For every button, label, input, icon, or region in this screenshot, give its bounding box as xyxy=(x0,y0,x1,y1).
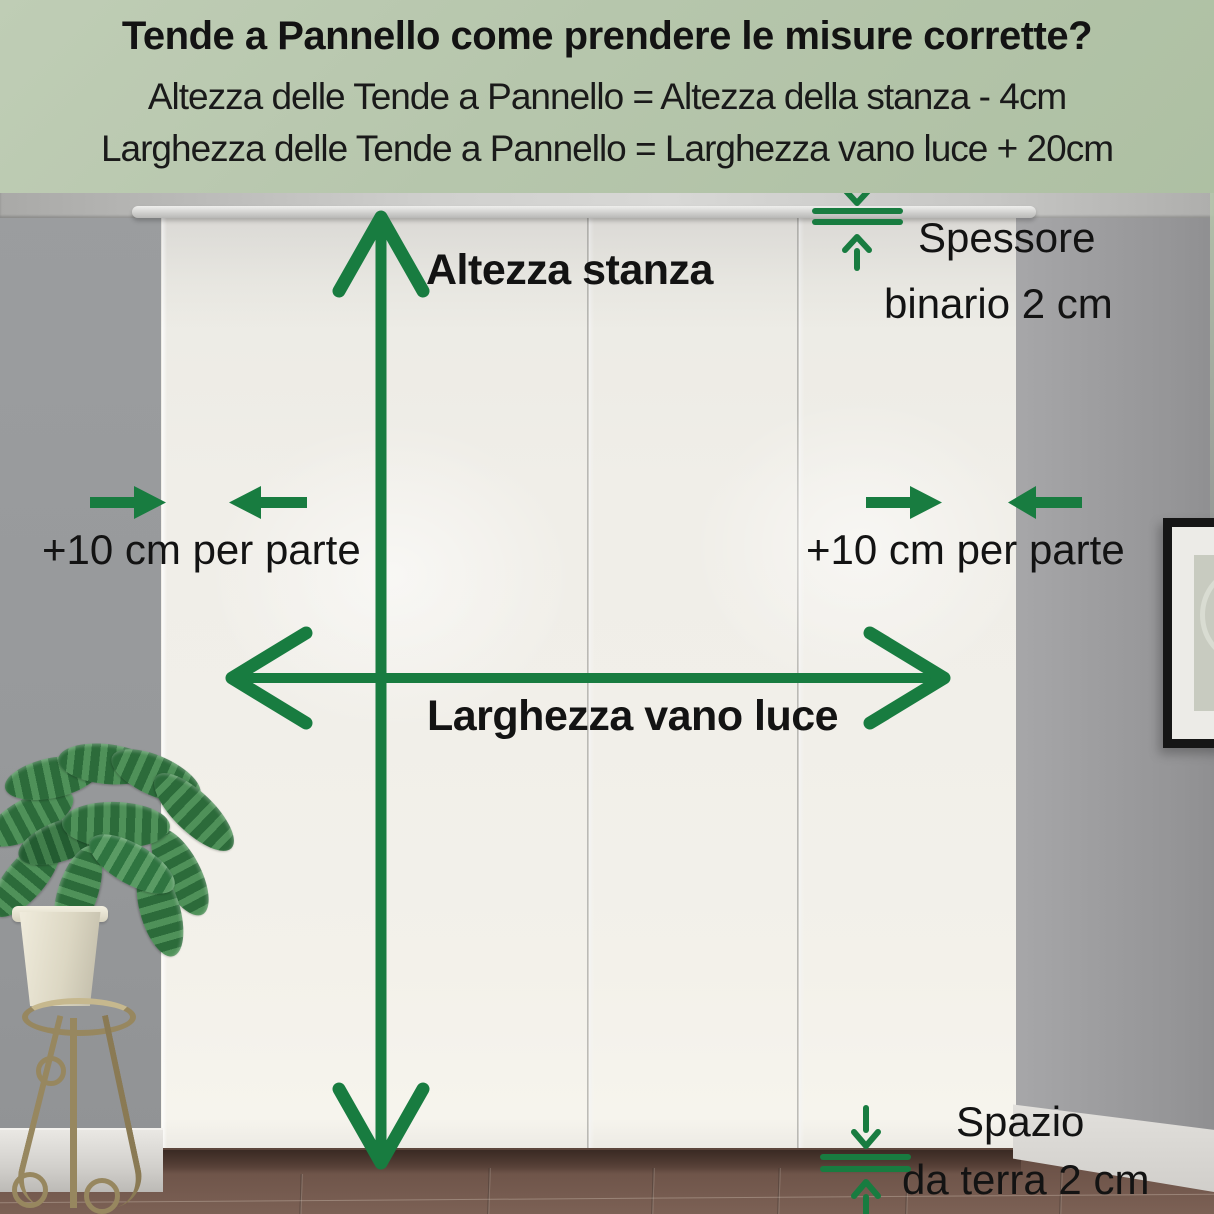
right-margin-label: +10 cm per parte xyxy=(806,526,1125,574)
left-margin-label: +10 cm per parte xyxy=(42,526,361,574)
height-formula: Altezza delle Tende a Pannello = Altezza… xyxy=(0,76,1214,118)
floor-gap-label-line1: Spazio xyxy=(956,1098,1084,1146)
floor-grout-line xyxy=(299,1174,303,1214)
floor-grout-line xyxy=(487,1168,491,1214)
potted-plant xyxy=(0,740,245,1214)
header: Tende a Pannello come prendere le misure… xyxy=(0,0,1214,193)
floor-grout-line xyxy=(777,1168,781,1214)
plant-stand-foot xyxy=(84,1178,120,1214)
curtain-panel xyxy=(797,216,1016,1156)
width-formula: Larghezza delle Tende a Pannello = Largh… xyxy=(0,128,1214,170)
rail-thickness-label-line1: Spessore xyxy=(918,214,1095,262)
plant-pot xyxy=(16,912,104,1006)
picture-frame xyxy=(1163,518,1214,748)
floor-shadow xyxy=(155,1150,1021,1174)
page-title: Tende a Pannello come prendere le misure… xyxy=(0,14,1214,59)
floor-gap-label-line2: da terra 2 cm xyxy=(902,1156,1149,1204)
room-height-label: Altezza stanza xyxy=(426,246,713,295)
framed-art xyxy=(1194,555,1214,711)
curtain-panel xyxy=(379,216,586,1156)
window-width-label: Larghezza vano luce xyxy=(427,692,829,741)
infographic: Tende a Pannello come prendere le misure… xyxy=(0,0,1214,1214)
plant-stand-ornament xyxy=(36,1056,66,1086)
panel-curtains xyxy=(161,216,1016,1156)
floor-grout-line xyxy=(651,1168,655,1214)
plant-stand-foot xyxy=(12,1172,48,1208)
curtain-panel xyxy=(587,216,797,1156)
curtain-rail xyxy=(132,206,1036,218)
rail-thickness-label-line2: binario 2 cm xyxy=(884,280,1113,328)
